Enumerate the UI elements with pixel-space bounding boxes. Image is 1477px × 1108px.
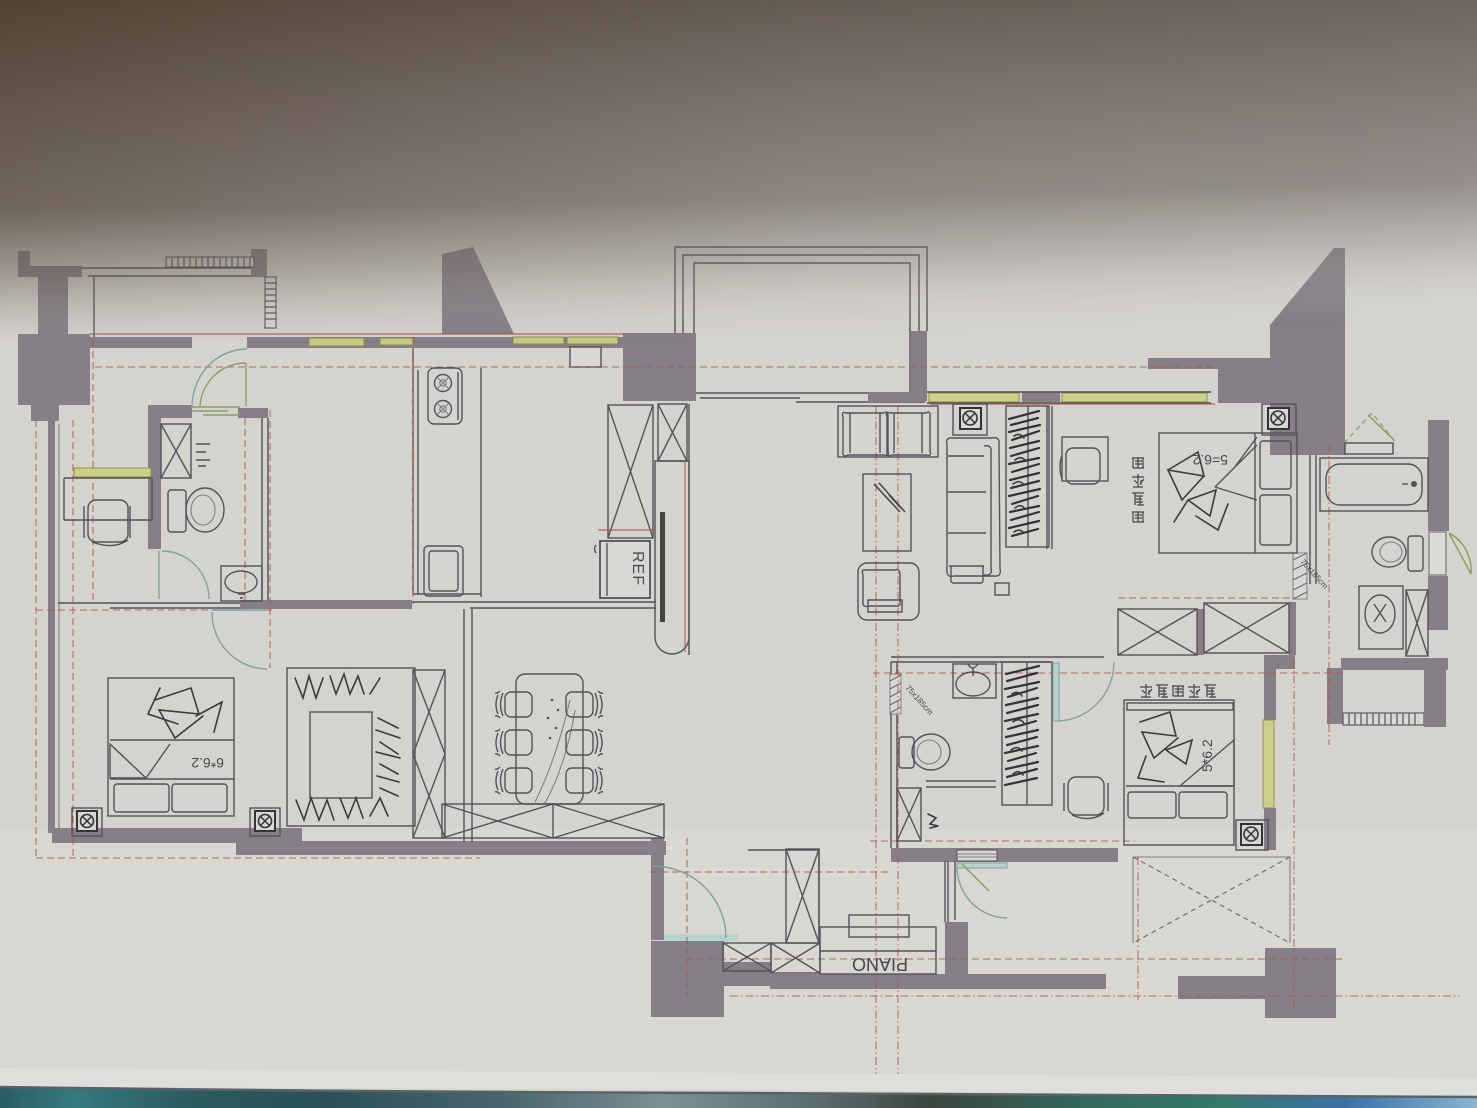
svg-text:5=6.2: 5=6.2	[1192, 452, 1228, 468]
svg-text:PIANO: PIANO	[852, 954, 908, 974]
svg-text:5*6.2: 5*6.2	[1199, 739, 1215, 772]
svg-text:REF: REF	[629, 551, 646, 586]
svg-text:6*6.2: 6*6.2	[191, 755, 224, 771]
